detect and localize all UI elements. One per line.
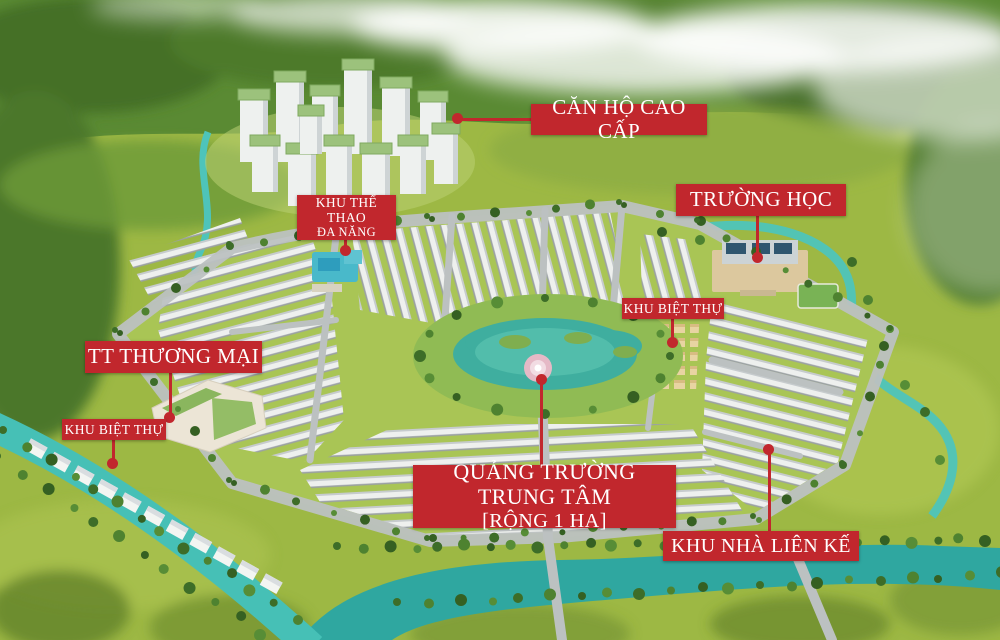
label-luxury-apartments: CĂN HỘ CAO CẤP — [531, 104, 707, 135]
school-sports-field — [798, 284, 838, 308]
label-townhouse-zone: KHU NHÀ LIÊN KẾ — [663, 531, 859, 561]
label-townhouse-zone-text: KHU NHÀ LIÊN KẾ — [671, 535, 851, 557]
label-sports-zone-line1: KHU THỂ THAO — [297, 195, 396, 225]
dot-villa-zone-left — [107, 458, 118, 469]
dot-apartments — [452, 113, 463, 124]
label-central-square-line1: QUẢNG TRƯỜNG TRUNG TÂM — [413, 460, 676, 509]
dot-villa-zone-right — [667, 337, 678, 348]
label-school-text: TRƯỜNG HỌC — [690, 188, 832, 212]
connector-townhouse-zone — [768, 453, 771, 532]
connector-apartments — [458, 118, 532, 121]
swimming-pool — [318, 258, 340, 271]
dot-central-square — [536, 374, 547, 385]
label-sports-zone: KHU THỂ THAO ĐA NĂNG — [297, 195, 396, 240]
connector-central-square — [540, 383, 543, 466]
dot-school — [752, 252, 763, 263]
dot-townhouse-zone — [763, 444, 774, 455]
label-school: TRƯỜNG HỌC — [676, 184, 846, 216]
label-commercial-center: TT THƯƠNG MẠI — [85, 341, 262, 373]
label-villa-zone-right-text: KHU BIỆT THỰ — [624, 301, 723, 316]
dot-sports-zone — [340, 245, 351, 256]
label-central-square: QUẢNG TRƯỜNG TRUNG TÂM [RỘNG 1 HA] — [413, 465, 676, 528]
label-villa-zone-left-text: KHU BIỆT THỰ — [65, 422, 164, 437]
label-sports-zone-line2: ĐA NĂNG — [317, 226, 376, 240]
label-villa-zone-right: KHU BIỆT THỰ — [622, 298, 724, 319]
masterplan-aerial-view: CĂN HỘ CAO CẤP TRƯỜNG HỌC KHU THỂ THAO Đ… — [0, 0, 1000, 640]
label-luxury-apartments-text: CĂN HỘ CAO CẤP — [531, 96, 707, 143]
label-villa-zone-left: KHU BIỆT THỰ — [62, 419, 166, 440]
label-central-square-line2: [RỘNG 1 HA] — [482, 510, 607, 533]
label-commercial-center-text: TT THƯƠNG MẠI — [88, 345, 259, 369]
